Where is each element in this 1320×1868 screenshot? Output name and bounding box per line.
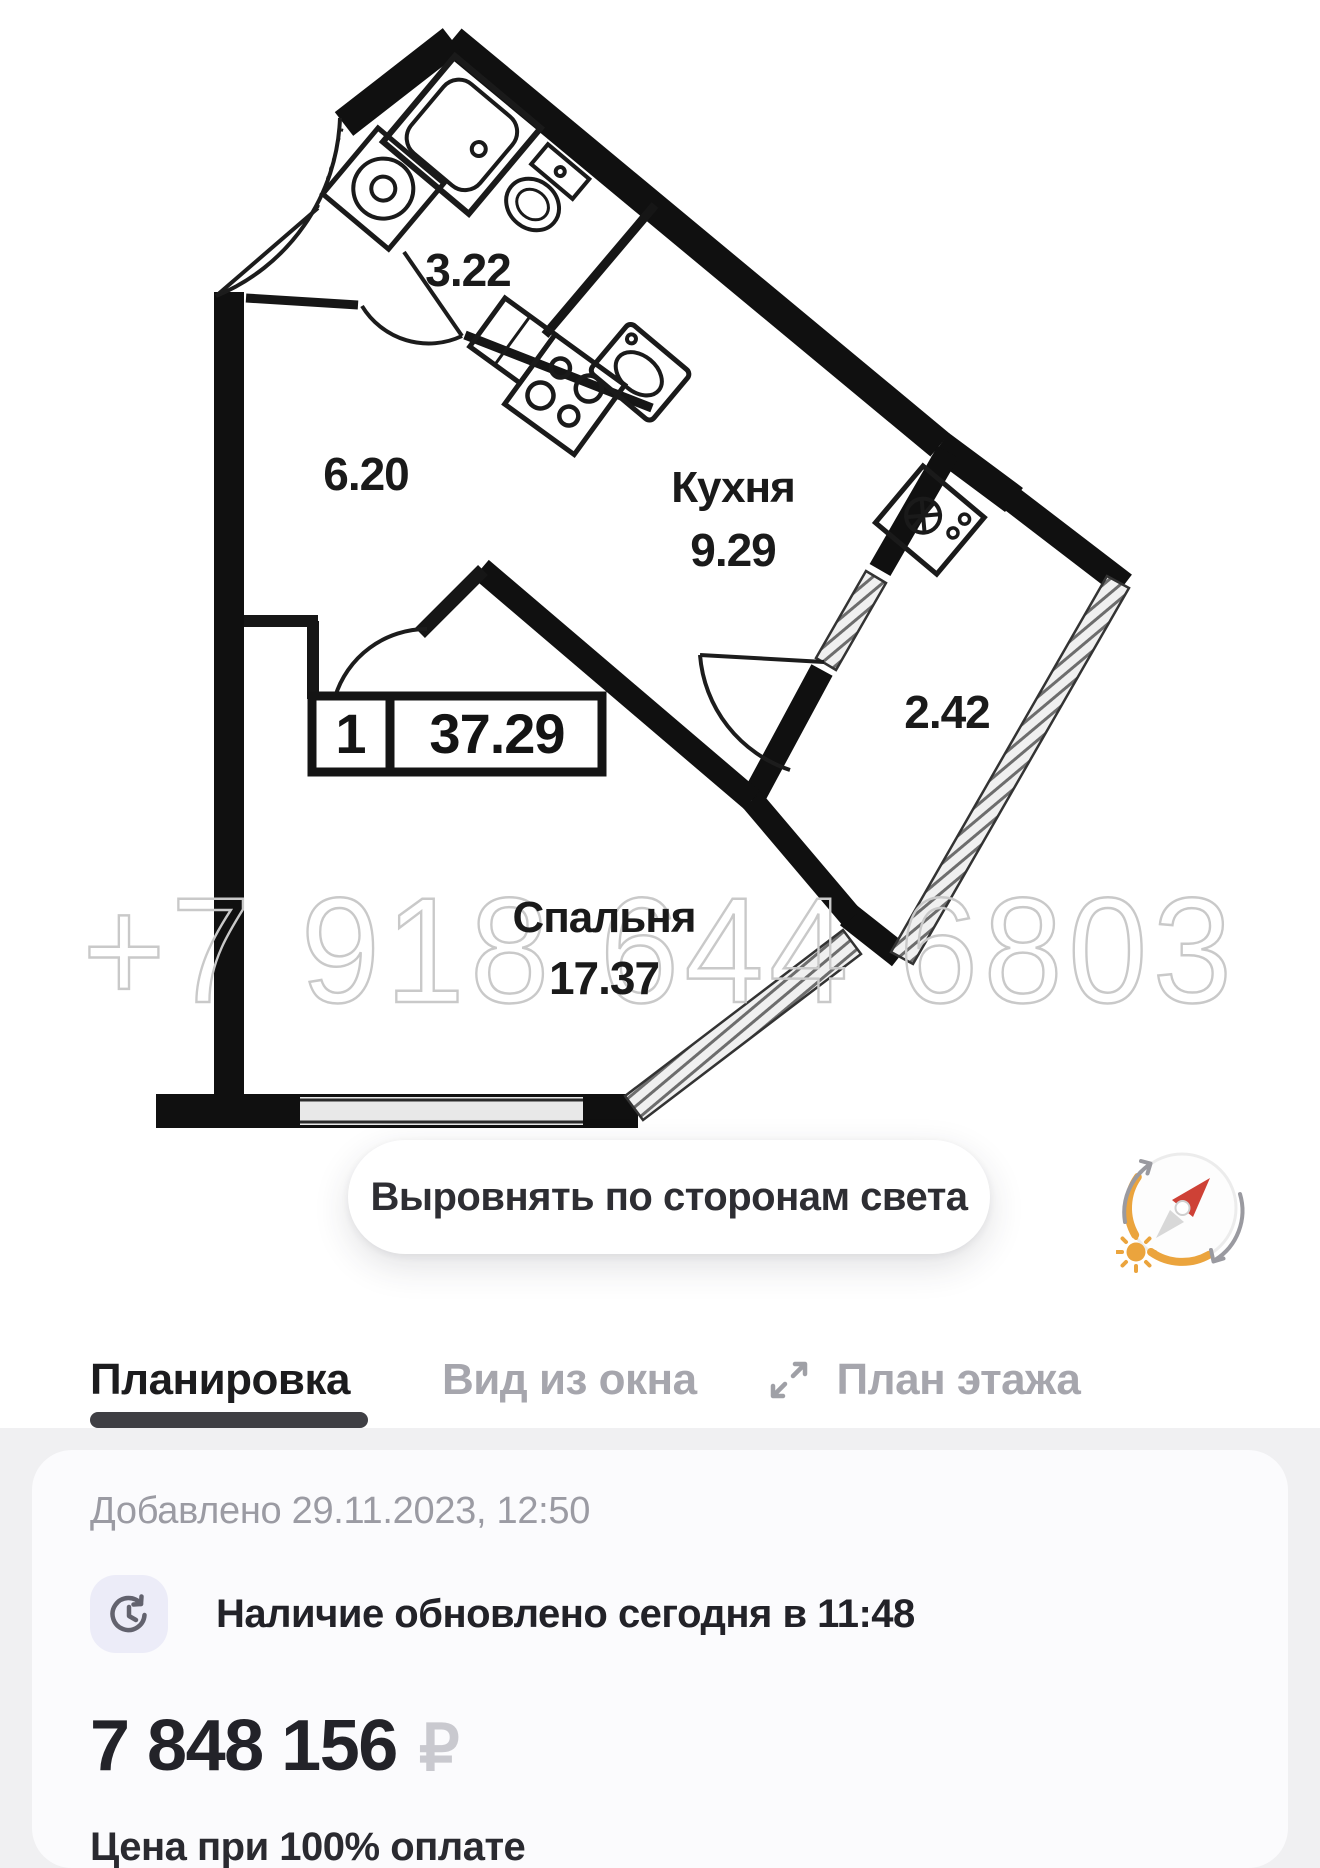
expand-icon <box>761 1352 817 1408</box>
details-section: Добавлено 29.11.2023, 12:50 Наличие обно… <box>0 1428 1320 1868</box>
ruble-currency-symbol: ₽ <box>419 1711 460 1786</box>
badge-rooms-count: 1 <box>335 702 366 765</box>
availability-row: Наличие обновлено сегодня в 11:48 <box>90 1575 1230 1653</box>
floor-plan-drawing: +7 918 644 6803 1 37.29 3.22 6.20 Кухня … <box>0 0 1320 1332</box>
bathroom-area-label: 3.22 <box>425 244 511 296</box>
tab-plan-etazha-label: План этажа <box>837 1355 1081 1405</box>
sun-icon <box>1117 1233 1155 1271</box>
bedroom-name-label: Спальня <box>512 893 695 942</box>
balcony-area-label: 2.42 <box>904 686 990 738</box>
active-tab-indicator <box>90 1412 368 1428</box>
phone-watermark: +7 918 644 6803 <box>83 866 1238 1034</box>
tab-planirovka[interactable]: Планировка <box>90 1355 350 1405</box>
tab-plan-etazha[interactable]: План этажа <box>761 1352 1081 1408</box>
listing-page: +7 918 644 6803 1 37.29 3.22 6.20 Кухня … <box>0 0 1320 1868</box>
price-row: 7 848 156 ₽ <box>90 1705 1230 1787</box>
kitchen-name-label: Кухня <box>671 463 795 512</box>
align-to-cardinal-button[interactable]: Выровнять по сторонам света <box>348 1140 990 1254</box>
details-card: Добавлено 29.11.2023, 12:50 Наличие обно… <box>32 1450 1288 1868</box>
clock-refresh-icon <box>106 1591 152 1637</box>
tab-vid-iz-okna[interactable]: Вид из окна <box>442 1355 697 1405</box>
kitchen-area-label: 9.29 <box>690 524 776 576</box>
compass-icon[interactable] <box>1116 1148 1256 1288</box>
floor-plan-viewport: +7 918 644 6803 1 37.29 3.22 6.20 Кухня … <box>0 0 1320 1332</box>
clock-bubble <box>90 1575 168 1653</box>
badge-total-area: 37.29 <box>429 702 564 765</box>
unit-badge: 1 37.29 <box>312 696 602 772</box>
plan-tabs: Планировка Вид из окна План этажа <box>0 1332 1320 1428</box>
bedroom-area-label: 17.37 <box>549 952 659 1004</box>
washing-machine-icon <box>323 128 444 249</box>
price-value: 7 848 156 <box>90 1705 397 1787</box>
hallway-area-label: 6.20 <box>323 448 409 500</box>
availability-text: Наличие обновлено сегодня в 11:48 <box>216 1592 915 1637</box>
added-date-text: Добавлено 29.11.2023, 12:50 <box>90 1490 1230 1533</box>
kitchen-counter-stove-icon <box>454 298 624 455</box>
price-note: Цена при 100% оплате <box>90 1825 1230 1868</box>
